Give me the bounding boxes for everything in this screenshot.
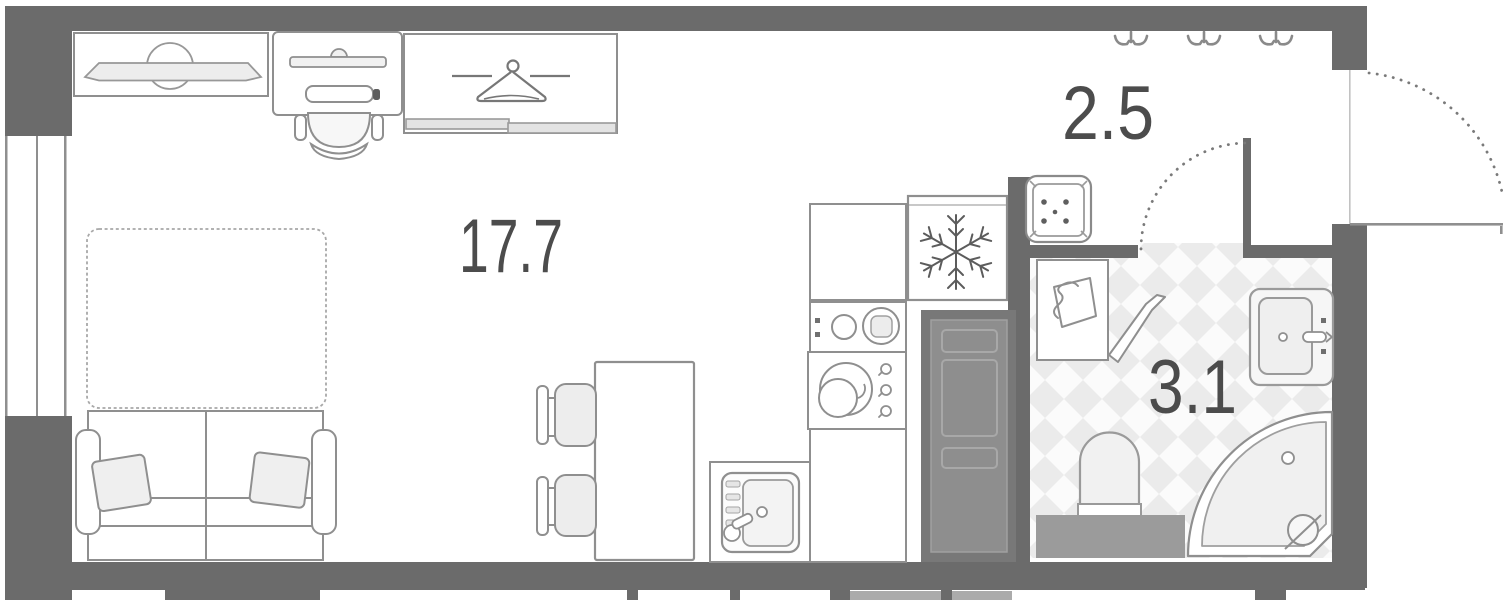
svg-text:17.7: 17.7 bbox=[459, 204, 563, 289]
svg-text:3.1: 3.1 bbox=[1148, 345, 1237, 430]
svg-text:2.5: 2.5 bbox=[1062, 71, 1154, 156]
